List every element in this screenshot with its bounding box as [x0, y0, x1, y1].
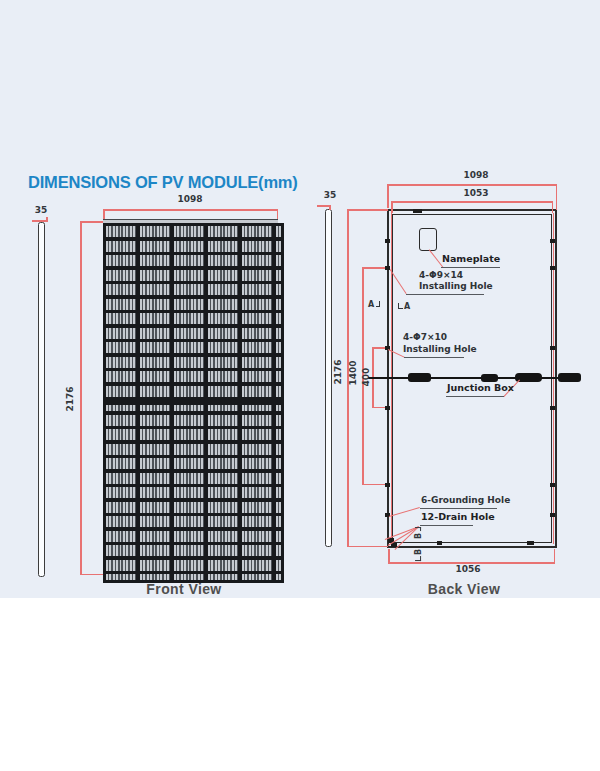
page-title: DIMENSIONS OF PV MODULE(mm): [28, 173, 298, 192]
grounding-hole-underline: [420, 508, 497, 509]
drain-hole-tick-bottom-1: [437, 541, 442, 545]
grounding-hole-label: 6-Grounding Hole: [421, 495, 510, 506]
section-a-letter-left: A: [368, 300, 374, 309]
installing-hole-small-underline: [404, 357, 464, 358]
front-panel-cell-grid: [103, 223, 284, 583]
installing-hole-tick-right-upper: [550, 266, 555, 270]
section-b-letter-upper: B: [414, 533, 423, 539]
back-thickness-dimtick: [329, 205, 331, 210]
jb-hole-tick-right-lower: [550, 406, 555, 410]
back-height-ext-bottom: [347, 546, 388, 548]
back-bottom-width-ext-right: [554, 549, 556, 563]
installing-hole-large-spec: 4-Φ9×14: [419, 270, 463, 281]
junction-box-label: Junction Box: [447, 382, 514, 393]
installing-hole-small-spec: 4-Φ7×10: [403, 332, 447, 343]
back-outer-width-dim: 1098: [446, 170, 506, 180]
section-b-letter-lower: B: [414, 549, 423, 555]
back-side-profile: [325, 209, 332, 547]
back-outer-width-ext-left: [387, 184, 389, 208]
drain-hole-tick-bottom-2: [527, 541, 534, 545]
section-a-bracket-left: [376, 301, 381, 307]
section-a-bracket-right: [398, 303, 403, 309]
front-thickness-dimtick: [46, 217, 48, 222]
junction-box-marker: [481, 374, 498, 382]
nameplate-marker: [419, 228, 437, 251]
front-thickness-dim: 35: [31, 205, 51, 215]
junction-box-underline: [446, 396, 504, 397]
back-bottom-width-dimline: [388, 562, 555, 564]
installing-hole-tick-left-lower: [385, 483, 390, 487]
front-height-ext-top: [80, 221, 104, 223]
back-bottom-width-dim: 1056: [438, 564, 498, 574]
hole-tick-left-1: [385, 239, 390, 243]
front-width-dim: 1098: [160, 194, 220, 204]
section-b-marker-lower: B: [415, 549, 423, 561]
front-width-dimline: [103, 209, 278, 211]
section-b-bracket-upper: [415, 527, 421, 532]
front-height-dim: 2176: [65, 381, 75, 417]
back-mounting-span-dim: 1400: [348, 355, 358, 391]
nameplate-label: Nameplate: [442, 253, 500, 264]
section-a-letter-right: A: [404, 302, 410, 311]
front-side-profile: [38, 222, 45, 577]
section-a-marker-left: A: [368, 301, 380, 309]
section-b-bracket-lower: [415, 557, 421, 562]
front-view-caption: Front View: [124, 581, 244, 597]
pv-module-dimension-diagram: DIMENSIONS OF PV MODULE(mm) 35 1098 2176…: [0, 0, 600, 771]
nameplate-underline: [441, 267, 500, 268]
installing-hole-large-underline: [406, 294, 484, 295]
front-height-ext-bottom: [80, 574, 104, 576]
installing-hole-tick-right-lower: [550, 483, 555, 487]
back-mounting-width-dim: 1053: [446, 188, 506, 198]
back-mounting-width-ext-right: [552, 202, 554, 213]
jb-hole-tick-right-upper: [550, 346, 555, 350]
back-bottom-width-ext-left: [388, 549, 390, 563]
front-height-dimline: [80, 221, 82, 575]
junction-box-cable: [368, 377, 580, 379]
back-mounting-width-dimline: [391, 201, 553, 203]
back-thickness-dim: 35: [320, 190, 340, 200]
section-a-marker-right: A: [398, 303, 410, 311]
back-outer-width-dimline: [387, 184, 557, 186]
drain-hole-underline: [420, 525, 473, 526]
grounding-hole-tick-right: [550, 513, 555, 517]
back-outer-width-ext-right: [556, 184, 558, 210]
drain-hole-label: 12-Drain Hole: [421, 511, 495, 522]
jb-hole-tick-left-lower: [385, 406, 390, 410]
back-view-caption: Back View: [404, 581, 524, 597]
back-height-ext-top: [347, 209, 388, 211]
hanger-hole-tick-top: [413, 209, 422, 213]
hole-tick-right-1: [550, 239, 555, 243]
back-height-dim: 2176: [333, 354, 343, 390]
back-mounting-width-ext-left: [391, 202, 393, 213]
installing-hole-large-label: Installing Hole: [419, 281, 493, 292]
mc4-connector-left: [408, 373, 431, 382]
section-b-marker-upper: B: [415, 527, 423, 539]
installing-hole-small-label: Installing Hole: [403, 344, 477, 355]
mc4-connector-right-outer: [558, 373, 581, 382]
